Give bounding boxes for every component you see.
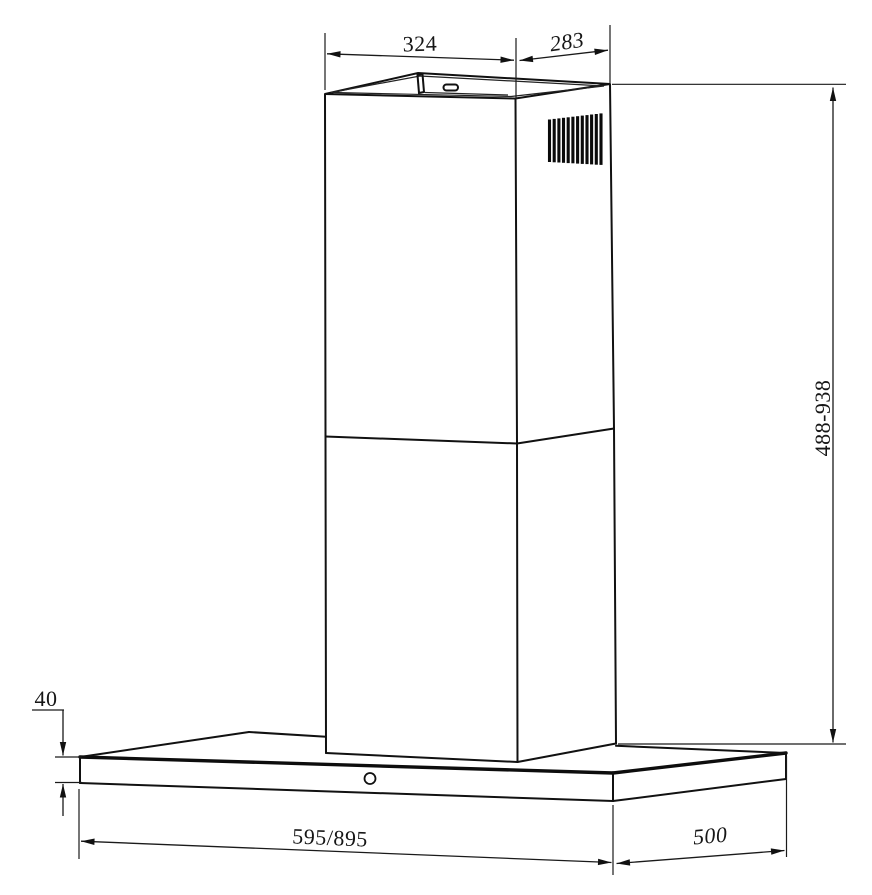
dimension-canopy-front-height: 40 (32, 686, 82, 816)
upper-front-left-edge (325, 94, 326, 437)
canopy-bottom-right-edge (613, 779, 786, 801)
chimney-upper-section (325, 84, 614, 444)
dimension-line (617, 851, 785, 864)
lower-front-right-edge (517, 444, 518, 763)
canopy (80, 732, 786, 801)
dimension-chimney-depth: 283 (520, 25, 611, 83)
canopy-top-back-edge-right (616, 746, 786, 753)
chimney-base-front-line (326, 753, 518, 762)
front-panel-button (365, 773, 376, 784)
mounting-bracket (418, 74, 425, 93)
dimensions: 324 283 488-938 40 595/895 (32, 25, 846, 875)
canopy-width-label: 595/895 (292, 823, 369, 851)
canopy-bottom-front-edge (80, 783, 613, 801)
chimney-depth-label: 283 (548, 27, 586, 57)
canopy-top-back-edge-left (249, 732, 326, 737)
canopy-top-left-edge (80, 732, 249, 757)
chimney-top-opening (325, 73, 610, 99)
technical-drawing-canvas: 324 283 488-938 40 595/895 (0, 0, 872, 895)
chimney-width-label: 324 (402, 31, 437, 57)
dimension-height-range: 488-938 (612, 84, 846, 744)
chimney-base-right-line (518, 744, 617, 763)
upper-front-right-edge (516, 99, 518, 444)
chimney-section-joint (326, 429, 615, 444)
lower-back-right-edge (614, 429, 616, 744)
joint-right-line (517, 429, 614, 444)
lower-front-left-edge (326, 437, 327, 754)
cooker-hood-dimension-drawing: 324 283 488-938 40 595/895 (0, 0, 872, 895)
dimension-canopy-width: 595/895 (79, 789, 613, 875)
height-range-label: 488-938 (810, 380, 835, 457)
canopy-depth-label: 500 (692, 822, 729, 850)
canopy-front-height-label: 40 (35, 686, 58, 711)
chimney-lower-section (326, 429, 617, 763)
canopy-top-right-edge (613, 753, 786, 773)
outlet-slot (444, 85, 459, 91)
joint-front-line (326, 437, 518, 444)
chimney-duct (325, 73, 616, 762)
vent-grille (550, 113, 602, 164)
dimension-canopy-depth: 500 (617, 756, 787, 864)
upper-back-right-edge (610, 84, 614, 429)
